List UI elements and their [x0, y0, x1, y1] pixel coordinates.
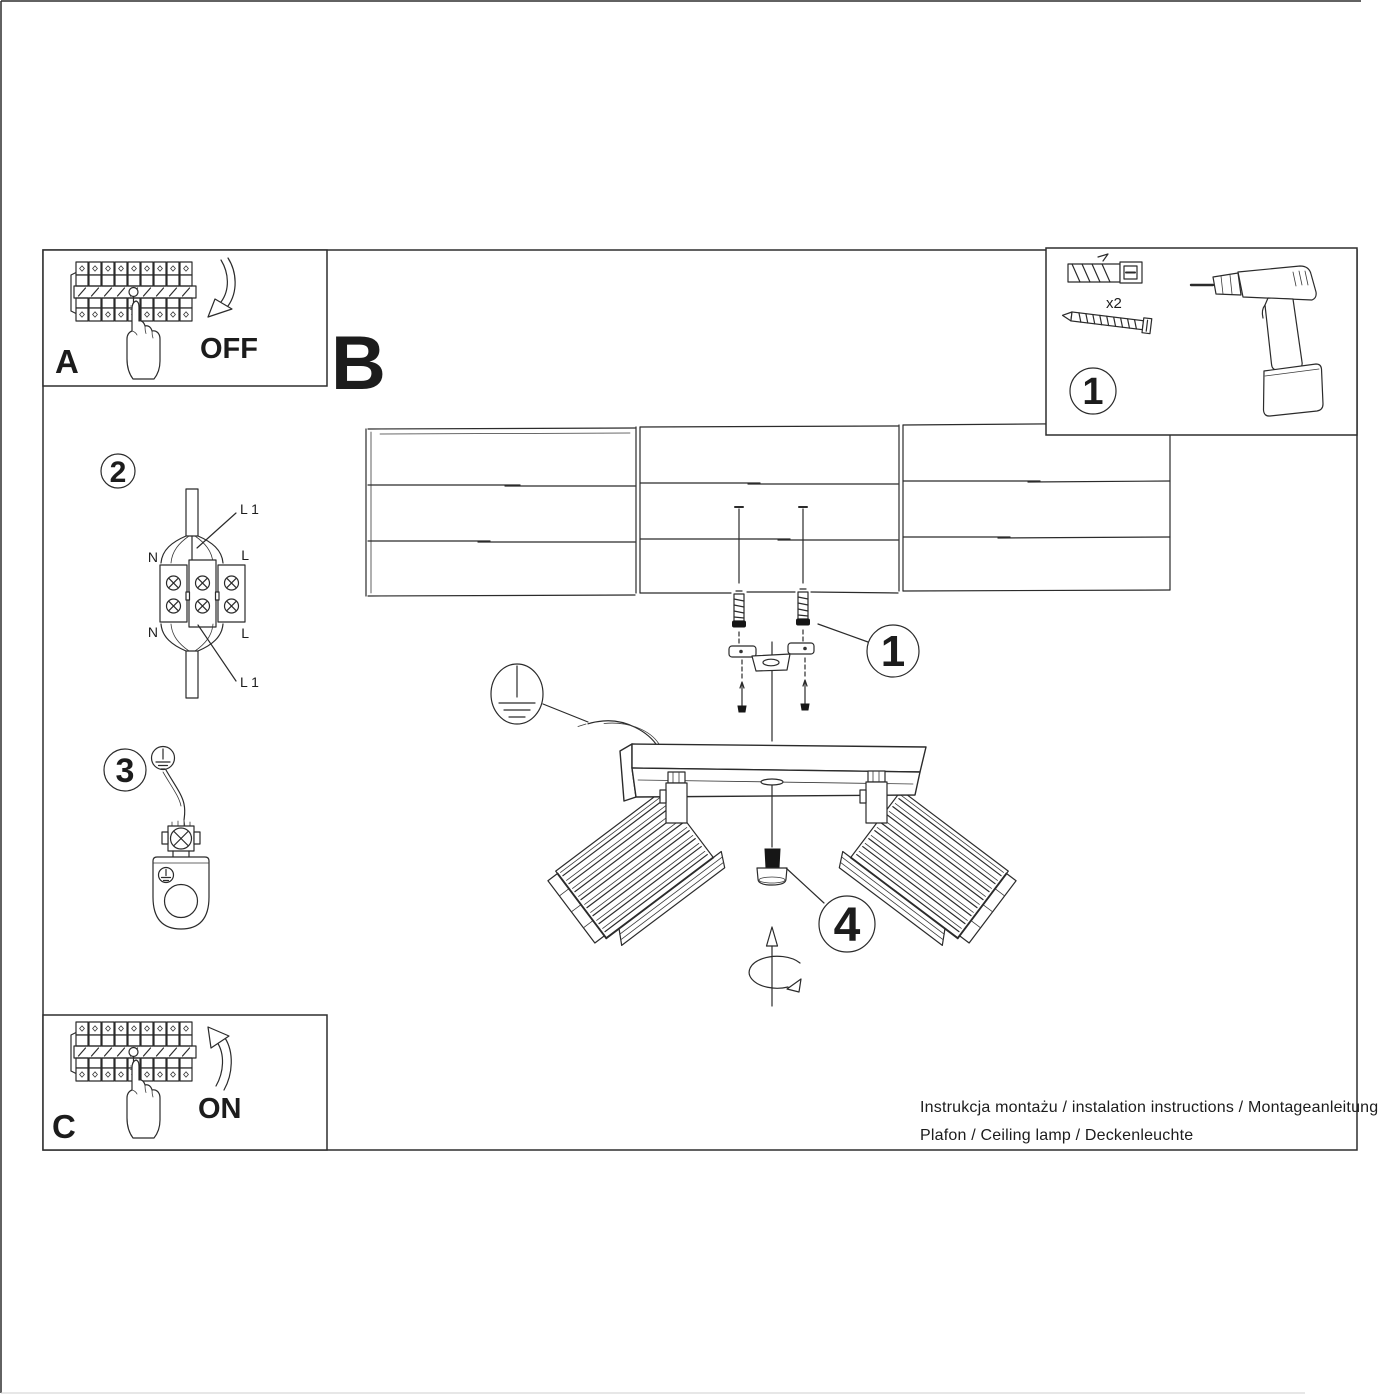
- spot-head-left: [546, 784, 730, 957]
- panel-a-label: A: [55, 343, 79, 380]
- callout-4-number: 4: [834, 899, 861, 952]
- step-2-wiring: 2 L 1 N L N L L 1: [101, 454, 259, 698]
- wall-anchor-right-icon: [797, 589, 810, 625]
- step-1-number: 1: [1082, 371, 1103, 413]
- step-3-earthing: 3: [104, 747, 209, 930]
- ceiling-screw-left-icon: [735, 507, 743, 583]
- panel-1-tools: x2 1: [1046, 248, 1357, 435]
- panel-a: OFF A: [43, 250, 327, 386]
- earth-terminal: [162, 821, 200, 857]
- panel-c-label: C: [52, 1108, 76, 1145]
- ground-symbol-small-icon: [152, 747, 175, 770]
- ceiling-planks: [366, 423, 1170, 596]
- footer-line-2: Plafon / Ceiling lamp / Deckenleuchte: [920, 1127, 1193, 1144]
- bracket-end: [153, 857, 209, 929]
- section-b-label: B: [331, 321, 386, 406]
- ground-symbol-icon: [491, 664, 543, 724]
- ground-connection: [491, 664, 659, 747]
- on-label: ON: [198, 1093, 242, 1125]
- terminal-block: [160, 560, 245, 627]
- off-label: OFF: [200, 333, 258, 365]
- page-border: [1, 1, 1361, 1393]
- wire-label-n-top: N: [148, 549, 158, 565]
- adjust-knob-icon: [757, 849, 787, 885]
- wire-label-l-top: L: [241, 547, 249, 563]
- rotation-arrow-icon: [749, 927, 801, 1006]
- footer: Instrukcja montażu / instalation instruc…: [920, 1099, 1378, 1144]
- wall-anchor-left-icon: [733, 591, 746, 627]
- cable-bottom: [186, 651, 198, 698]
- cable-top: [186, 489, 198, 536]
- step-2-number: 2: [110, 456, 127, 489]
- ceiling-screw-right-icon: [799, 507, 807, 583]
- wire-label-l1-top: L 1: [240, 501, 259, 517]
- footer-line-1: Instrukcja montażu / instalation instruc…: [920, 1099, 1378, 1116]
- ceiling-lamp: 4: [546, 744, 1018, 1006]
- callout-1: 1: [818, 624, 919, 677]
- instruction-sheet: 1: [0, 0, 1400, 1400]
- bracket-screw-right-icon: [801, 680, 809, 710]
- callout-1-number: 1: [881, 627, 905, 676]
- quantity-label: x2: [1106, 295, 1122, 312]
- mounting-hardware: 1: [729, 507, 919, 741]
- wire-label-l-bottom: L: [241, 625, 249, 641]
- wire-label-n-bottom: N: [148, 624, 158, 640]
- bracket-screw-left-icon: [738, 682, 746, 712]
- instruction-drawing: 1: [0, 0, 1400, 1400]
- wire-label-l1-bottom: L 1: [240, 674, 259, 690]
- panel-c: ON C: [43, 1015, 327, 1150]
- step-3-number: 3: [116, 752, 135, 790]
